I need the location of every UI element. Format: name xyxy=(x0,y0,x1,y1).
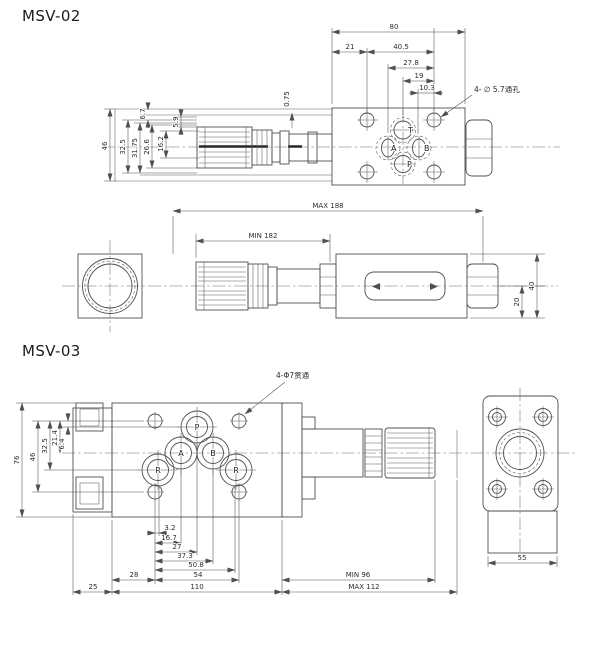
msv03-step-top xyxy=(302,417,315,429)
msv03-end-band xyxy=(282,403,302,517)
msv02-dim-80: 80 xyxy=(390,23,399,31)
msv03-bottom-dimensions: 3.2 16.7 27 37.3 50.8 28 54 MIN 96 25 11… xyxy=(73,444,457,595)
msv02-plate xyxy=(332,108,465,185)
msv03-dim-6-4: 6.4 xyxy=(58,438,66,450)
msv02-dim-max188: MAX 188 xyxy=(312,202,343,210)
msv02-port-p-label: P xyxy=(407,160,412,169)
msv03-dim-3-2: 3.2 xyxy=(164,524,175,532)
msv03-hole-note-leader xyxy=(245,382,285,414)
msv03-flange-base xyxy=(488,511,557,553)
msv02-side-and-plate-view: T A B P 80 21 40.5 27.8 19 10.3 xyxy=(101,23,560,185)
msv03-dim-54: 54 xyxy=(194,571,203,579)
msv03-hole-note: 4-Φ7贯通 xyxy=(245,370,310,414)
msv02-plate-top-view: T A B P xyxy=(332,108,492,185)
msv02-port-t-label: T xyxy=(407,126,413,135)
msv03-dim-110: 110 xyxy=(190,583,203,591)
msv02-hole-note: 4- ∅ 5.7通孔 xyxy=(441,84,520,117)
msv03-dim-32-5: 32.5 xyxy=(41,438,49,454)
msv02-dim-46: 46 xyxy=(101,141,109,150)
msv02-dim-5-9: 5.9 xyxy=(172,116,180,127)
msv03-dim-min96: MIN 96 xyxy=(346,571,371,579)
msv02-dim-16-2: 16.2 xyxy=(157,136,165,152)
msv02-dim-32-5: 32.5 xyxy=(119,139,127,155)
technical-drawing: MSV-02 xyxy=(0,0,600,649)
msv03-left-flange xyxy=(73,408,112,512)
msv03-dim-55: 55 xyxy=(518,554,527,562)
msv03-bottom-boss-slot xyxy=(80,483,99,504)
msv03-dim-25: 25 xyxy=(89,583,98,591)
msv03-title: MSV-03 xyxy=(22,342,81,360)
msv02-left-dimensions: 46 32.5 31.75 26.6 16.2 5.9 6.7 0.75 xyxy=(101,91,292,181)
msv02-port-b-label: B xyxy=(424,144,430,153)
msv02-dim-10-3: 10.3 xyxy=(419,84,435,92)
msv03-dim-max112: MAX 112 xyxy=(348,583,379,591)
msv03-port-r1-label: R xyxy=(155,466,161,475)
msv02-front-dimensions: MAX 188 MIN 182 40 20 xyxy=(173,202,545,318)
msv02-ring2 xyxy=(280,131,289,164)
msv02-dim-20: 20 xyxy=(513,298,521,307)
msv03-view: P A B R R 4-Φ7贯通 xyxy=(13,370,575,595)
msv03-dim-76: 76 xyxy=(13,455,21,464)
msv03-dim-46: 46 xyxy=(29,452,37,461)
msv03-port-a-label: A xyxy=(178,449,184,458)
msv02-ring1 xyxy=(272,133,280,162)
msv03-dim-28: 28 xyxy=(130,571,139,579)
msv02-dim-min182: MIN 182 xyxy=(249,232,278,240)
msv02-hex-facets xyxy=(466,139,492,158)
msv02-dim-40: 40 xyxy=(528,282,536,291)
msv02-front-view: MAX 188 MIN 182 40 20 xyxy=(62,202,558,332)
msv02-end-view xyxy=(78,240,142,332)
msv03-dim-50-8: 50.8 xyxy=(188,561,204,569)
msv03-port-b-label: B xyxy=(210,449,216,458)
msv03-adjuster xyxy=(282,403,457,517)
msv03-dim-37-3: 37.3 xyxy=(177,552,193,560)
msv03-step-bottom xyxy=(302,477,315,499)
msv02-ring3 xyxy=(308,132,317,163)
msv02-port-a-label: A xyxy=(391,144,397,153)
msv02-valve-side-view xyxy=(197,127,332,168)
msv02-dim-27-8: 27.8 xyxy=(403,59,419,67)
drawing-sheet: MSV-02 xyxy=(0,0,600,649)
msv02-hole-note-text: 4- ∅ 5.7通孔 xyxy=(474,84,520,94)
msv02-dim-19: 19 xyxy=(415,72,424,80)
msv02-front-slot-arrows xyxy=(372,283,438,290)
msv03-flange-view: 55 xyxy=(483,388,558,567)
msv03-hole-note-text: 4-Φ7贯通 xyxy=(276,370,310,380)
msv03-plate-view: P A B R R xyxy=(73,403,282,517)
msv03-port-p-label: P xyxy=(195,423,200,432)
msv02-dim-6-7: 6.7 xyxy=(139,108,147,119)
msv02-top-dimensions: 80 21 40.5 27.8 19 10.3 xyxy=(332,23,465,134)
msv03-port-r2-label: R xyxy=(233,466,239,475)
msv02-hole-note-leader xyxy=(441,95,472,117)
msv03-dim-16-7: 16.7 xyxy=(161,534,177,542)
msv03-dim-27: 27 xyxy=(173,543,182,551)
msv02-title: MSV-02 xyxy=(22,7,81,25)
msv02-dim-26-6: 26.6 xyxy=(143,139,151,155)
msv02-dim-21: 21 xyxy=(346,43,355,51)
msv03-locknut-knurling xyxy=(365,436,382,471)
msv02-dim-31-75: 31.75 xyxy=(131,138,139,158)
msv02-dim-40-5: 40.5 xyxy=(393,43,409,51)
msv02-dim-0-75: 0.75 xyxy=(283,91,291,107)
msv03-top-boss-slot xyxy=(80,409,99,426)
msv02-hex-end xyxy=(466,120,492,176)
